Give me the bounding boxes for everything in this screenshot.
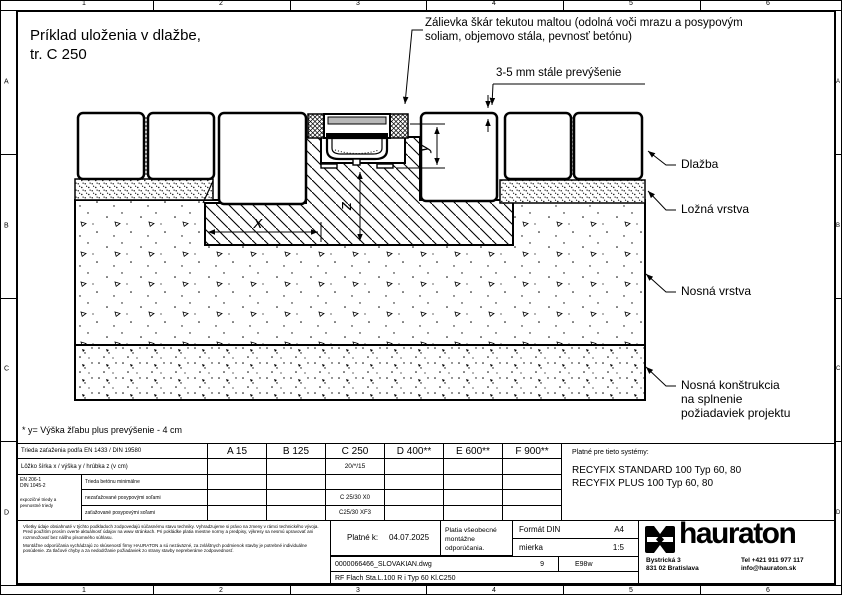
load-class-f900: F 900** xyxy=(502,443,562,459)
zone-row-label: B xyxy=(4,223,9,230)
systems-title: Platné pre tieto systémy: xyxy=(572,449,835,456)
foundation-dims-row-label: Lôžko šírka x / výška y / hrúbka z (v cm… xyxy=(16,458,208,475)
zone-divider xyxy=(836,441,842,442)
format-cell: Formát DIN A4 xyxy=(512,520,639,539)
zone-row-label: A xyxy=(836,79,840,85)
zone-strip-right: A B C D xyxy=(836,10,842,585)
drawing-title-line2: tr. C 250 xyxy=(30,45,201,64)
file-name-cell: 0000066466_SLOVAKIAN.dwg 9 xyxy=(330,556,559,572)
zone-row-label: C xyxy=(4,366,9,373)
dims-b125 xyxy=(266,458,326,475)
grout-joint-left xyxy=(308,114,324,138)
channel-body xyxy=(327,138,387,159)
concrete-cell xyxy=(266,505,326,521)
grout-note: Zálievka škár tekutou maltou (odolná voč… xyxy=(425,16,743,44)
channel-grate-frame xyxy=(326,133,388,137)
channel-grate-top-bar xyxy=(328,117,386,124)
zone-divider xyxy=(700,586,701,595)
channel-foot-stem xyxy=(353,159,360,165)
zone-col-label: 4 xyxy=(492,0,496,7)
dim-x-label: x xyxy=(253,213,263,232)
valid-systems-cell: Platné pre tieto systémy: RECYFIX STANDA… xyxy=(561,443,836,521)
zone-col-label: 6 xyxy=(766,0,770,7)
concrete-cell xyxy=(502,474,562,490)
concrete-cell xyxy=(443,505,503,521)
concrete-cell xyxy=(207,474,267,490)
brand-address-line1: Bystrická 3 xyxy=(646,557,699,565)
zone-col-label: 2 xyxy=(219,0,223,7)
zone-divider xyxy=(153,586,154,595)
no-deicing-salt-row-label: nezaťažované posypovými soľami xyxy=(81,489,208,506)
zone-col-label: 1 xyxy=(82,0,86,7)
concrete-norm-cell: EN 206-1 DIN 1045-2 expozičné triedy a p… xyxy=(16,474,82,521)
dim-z-label: z xyxy=(336,201,355,211)
concrete-cell xyxy=(384,505,444,521)
grout-note-line2: soliam, objemovo stála, pevnosť betónu) xyxy=(425,30,743,44)
bedding-layer-right xyxy=(500,180,645,203)
label-bedding: Ložná vrstva xyxy=(681,202,749,216)
dims-c250: 20/*/15 xyxy=(325,458,385,475)
paving-block-adjacent-left xyxy=(219,113,306,204)
zone-strip-bottom: 1 2 3 4 5 6 xyxy=(0,585,842,595)
load-class-row-label: Trieda zaťaženia podľa EN 1433 / DIN 195… xyxy=(16,443,208,459)
zone-row-label: B xyxy=(836,223,840,229)
concrete-cell xyxy=(502,505,562,521)
file-name: 0000066466_SLOVAKIAN.dwg xyxy=(335,561,432,568)
drawing-title-line1: Príklad uloženia v dlažbe, xyxy=(30,26,201,45)
zone-divider xyxy=(0,298,16,299)
drawing-sheet: 1 2 3 4 5 6 1 2 3 4 5 6 A B C D A B C D xyxy=(0,0,842,595)
zone-divider xyxy=(0,441,16,442)
disclaimer-paragraph-1: Všetky údaje obsiahnuté v týchto podklad… xyxy=(23,524,324,540)
zone-strip-left: A B C D xyxy=(0,10,16,585)
concrete-cell xyxy=(266,489,326,506)
general-note-line1: Platia všeobecné xyxy=(445,526,512,535)
overhang-leader-line xyxy=(492,84,493,105)
footnote-y-definition: * y= Výška žľabu plus prevýšenie - 4 cm xyxy=(22,425,182,435)
format-label: Formát DIN xyxy=(519,525,560,534)
paving-block xyxy=(78,113,144,179)
zone-divider xyxy=(836,298,842,299)
load-class-d400: D 400** xyxy=(384,443,444,459)
dims-d400 xyxy=(384,458,444,475)
zone-row-label: C xyxy=(836,366,840,372)
general-note-cell: Platia všeobecné montážne odporúčania. xyxy=(440,520,513,556)
leader-paving xyxy=(648,151,676,165)
hauraton-logo-icon xyxy=(645,526,675,553)
revision-number: 9 xyxy=(540,561,544,568)
concrete-cell xyxy=(325,474,385,490)
zone-divider xyxy=(426,0,427,10)
code-cell: E98w xyxy=(558,556,639,572)
disclaimer-paragraph-2: Montážne odporúčania vychádzajú zo skúse… xyxy=(23,543,324,554)
general-note-line2: montážne odporúčania. xyxy=(445,535,512,553)
concrete-cell xyxy=(443,489,503,506)
channel-base-flange-right xyxy=(377,164,393,168)
disclaimer-cell: Všetky údaje obsiahnuté v týchto podklad… xyxy=(16,520,331,585)
zone-col-label: 5 xyxy=(629,587,633,594)
subbase-layer xyxy=(75,345,645,400)
drawing-title: Príklad uloženia v dlažbe, tr. C 250 xyxy=(30,26,201,64)
scale-value: 1:5 xyxy=(613,543,624,552)
channel-base-flange-left xyxy=(321,164,337,168)
zone-col-label: 6 xyxy=(766,587,770,594)
leader-base xyxy=(646,274,676,292)
format-value: A4 xyxy=(614,525,624,534)
brand-address: Bystrická 3 831 02 Bratislava xyxy=(646,557,699,573)
scale-label: mierka xyxy=(519,543,543,552)
hauraton-wordmark: hauraton xyxy=(679,520,795,551)
zone-divider xyxy=(153,0,154,10)
concrete-grade-c250-x0: C 25/30 X0 xyxy=(325,489,385,506)
zone-divider xyxy=(563,586,564,595)
scale-cell: mierka 1:5 xyxy=(512,538,639,557)
zone-divider xyxy=(290,586,291,595)
concrete-cell xyxy=(443,474,503,490)
zone-divider xyxy=(836,154,842,155)
concrete-quality-row-label: Trieda betónu minimálne xyxy=(81,474,208,490)
leader-bedding xyxy=(648,191,676,210)
drawing-name-cell: RF Flach Sta.L.100 R i Typ 60 Kl.C250 xyxy=(330,571,639,585)
brand-phone: Tel +421 911 977 117 xyxy=(741,557,804,565)
label-subbase-line1: Nosná konštrukcia xyxy=(681,378,790,392)
brand-address-line2: 831 02 Bratislava xyxy=(646,565,699,573)
label-paving: Dlažba xyxy=(681,157,718,171)
concrete-cell xyxy=(207,505,267,521)
paving-block-adjacent-right xyxy=(421,113,497,201)
zone-col-label: 1 xyxy=(82,587,86,594)
concrete-grade-c250-xf3: C25/30 XF3 xyxy=(325,505,385,521)
concrete-norm-note2: pevnostné triedy xyxy=(20,503,81,509)
zone-row-label: D xyxy=(836,510,840,516)
zone-divider xyxy=(426,586,427,595)
paving-block xyxy=(574,113,642,179)
leader-subbase xyxy=(646,367,676,386)
grout-note-line1: Zálievka škár tekutou maltou (odolná voč… xyxy=(425,16,743,30)
brand-email: info@hauraton.sk xyxy=(741,565,804,573)
zone-col-label: 5 xyxy=(629,0,633,7)
overhang-note: 3-5 mm stále prevýšenie xyxy=(496,66,621,80)
label-subbase-line2: na splnenie xyxy=(681,392,790,406)
zone-divider xyxy=(563,0,564,10)
zone-col-label: 3 xyxy=(356,587,360,594)
zone-row-label: A xyxy=(4,79,9,86)
dim-y-label: y xyxy=(413,142,432,153)
label-subbase: Nosná konštrukcia na splnenie požiadavie… xyxy=(681,378,790,420)
concrete-cell xyxy=(384,489,444,506)
concrete-cell xyxy=(266,474,326,490)
deicing-salt-row-label: zaťažované posypovými soľami xyxy=(81,505,208,521)
dims-f900 xyxy=(502,458,562,475)
paving-block xyxy=(505,113,571,179)
dims-e600 xyxy=(443,458,503,475)
load-class-a15: A 15 xyxy=(207,443,267,459)
zone-divider xyxy=(290,0,291,10)
dims-a15 xyxy=(207,458,267,475)
valid-date-label: Platné k: xyxy=(347,533,378,542)
grout-joint-right xyxy=(390,114,408,138)
valid-date-cell: Platné k: 04.07.2025 xyxy=(330,520,441,556)
zone-col-label: 4 xyxy=(492,587,496,594)
brand-contact: Tel +421 911 977 117 info@hauraton.sk xyxy=(741,557,804,573)
system-name-2: RECYFIX PLUS 100 Typ 60, 80 xyxy=(572,477,835,490)
load-class-b125: B 125 xyxy=(266,443,326,459)
grout-leader-line xyxy=(405,30,423,104)
brand-cell: hauraton Bystrická 3 831 02 Bratislava T… xyxy=(638,520,836,585)
concrete-cell xyxy=(502,489,562,506)
load-class-e600: E 600** xyxy=(443,443,503,459)
label-subbase-line3: požiadaviek projektu xyxy=(681,406,790,420)
zone-col-label: 3 xyxy=(356,0,360,7)
zone-divider xyxy=(0,154,16,155)
concrete-cell xyxy=(207,489,267,506)
bedding-layer-left xyxy=(75,179,213,200)
concrete-cell xyxy=(384,474,444,490)
system-name-1: RECYFIX STANDARD 100 Typ 60, 80 xyxy=(572,464,835,477)
zone-col-label: 2 xyxy=(219,587,223,594)
zone-row-label: D xyxy=(4,510,9,517)
load-class-c250: C 250 xyxy=(325,443,385,459)
paving-block xyxy=(148,113,214,179)
valid-date-value: 04.07.2025 xyxy=(389,533,429,542)
zone-divider xyxy=(700,0,701,10)
concrete-norm-line2: DIN 1045-2 xyxy=(20,483,81,489)
label-base: Nosná vrstva xyxy=(681,284,751,298)
